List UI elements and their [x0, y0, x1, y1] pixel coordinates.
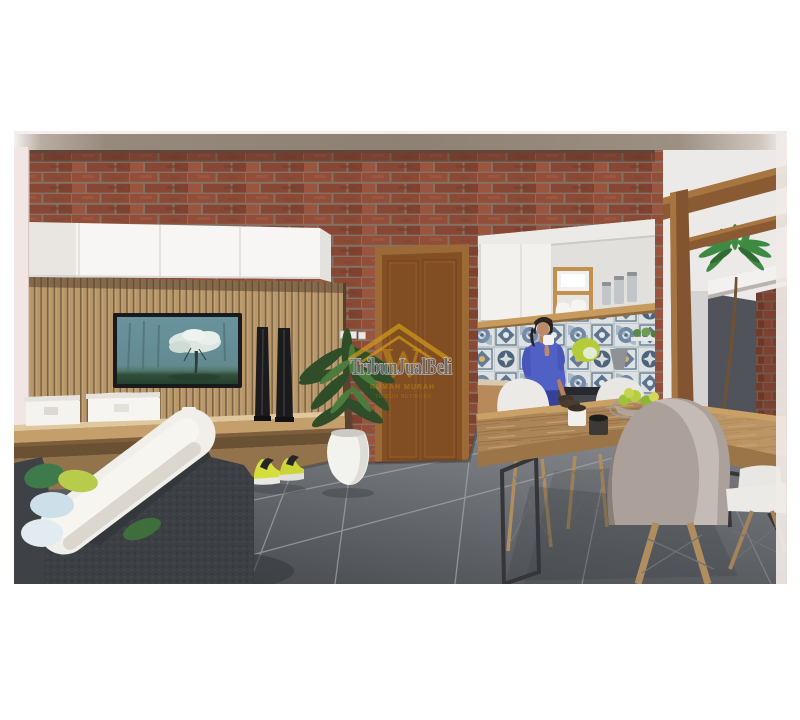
- svg-text:TRIBUN NETWORK: TRIBUN NETWORK: [375, 394, 432, 400]
- svg-text:RUMAH MURAH: RUMAH MURAH: [370, 384, 435, 391]
- svg-text:TribunJualBeli: TribunJualBeli: [350, 354, 453, 379]
